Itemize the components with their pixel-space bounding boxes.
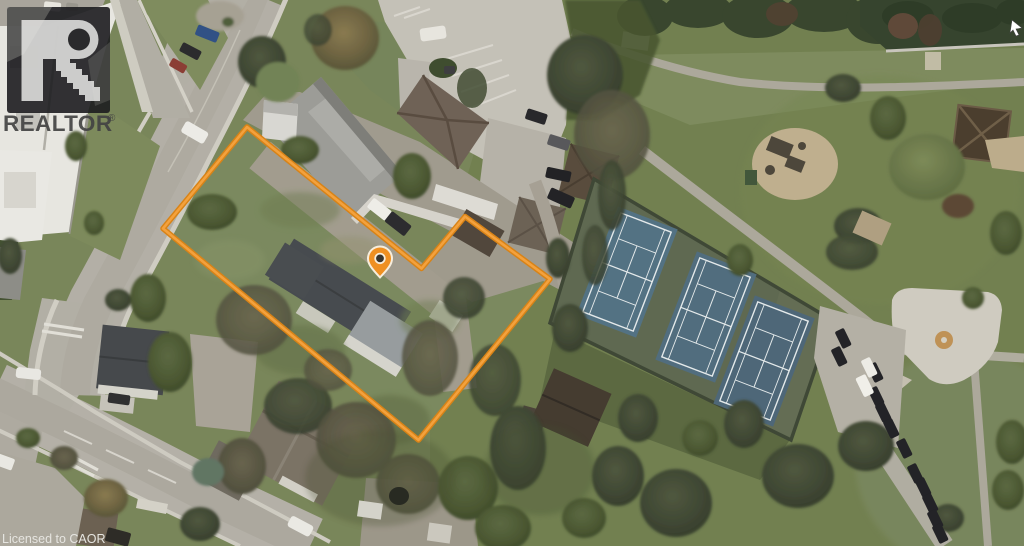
svg-text:®: ® [108, 113, 116, 124]
svg-text:REALTOR: REALTOR [3, 111, 112, 136]
svg-text:Licensed to CAOR: Licensed to CAOR [2, 532, 106, 546]
